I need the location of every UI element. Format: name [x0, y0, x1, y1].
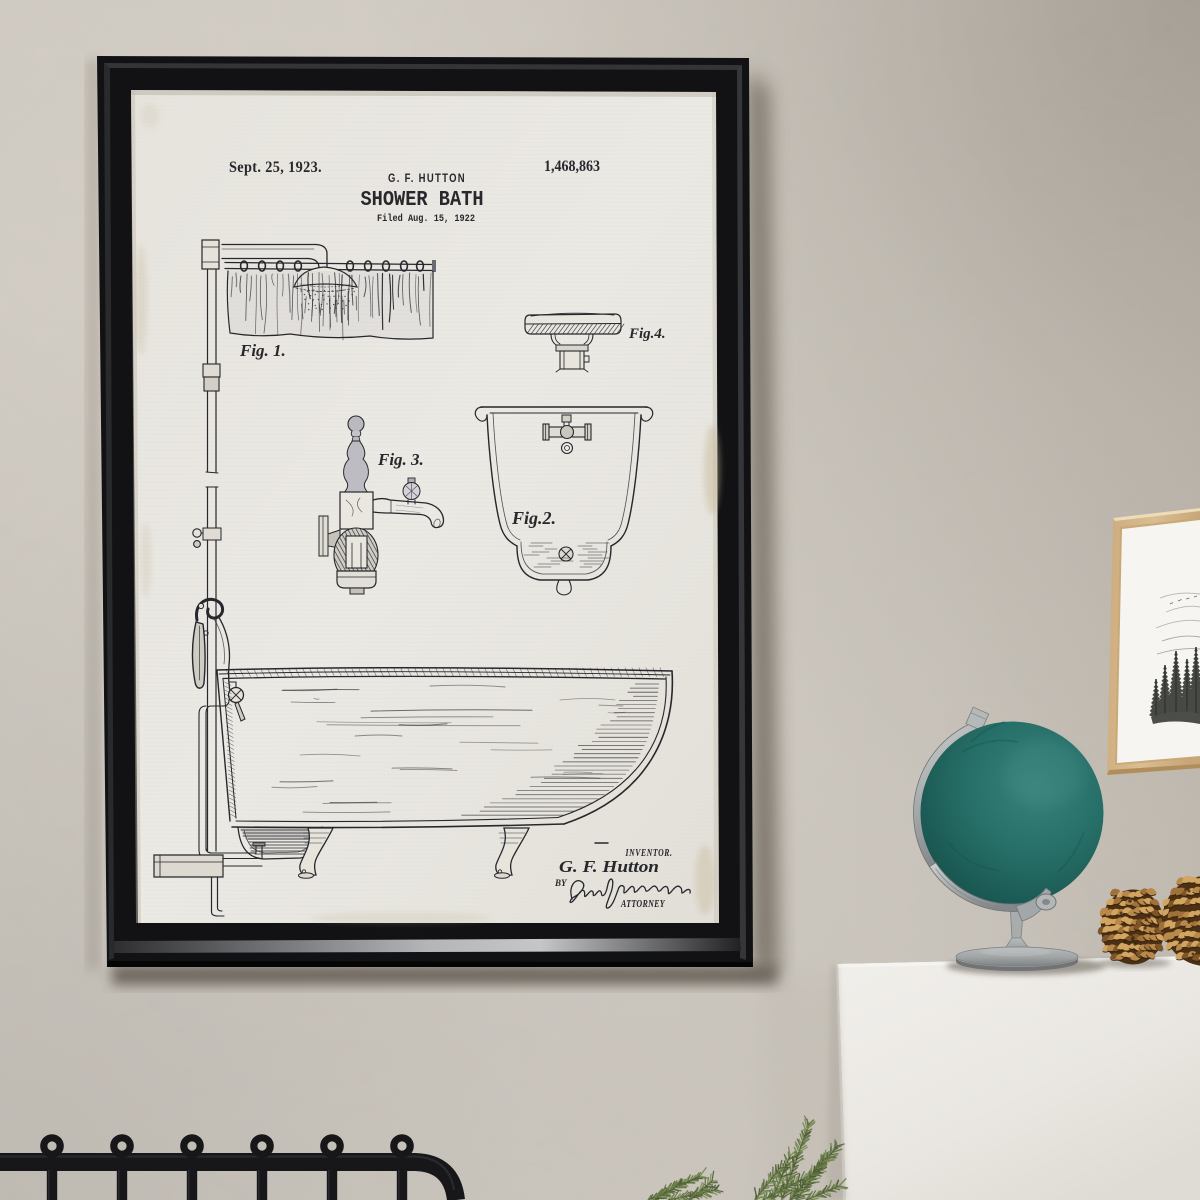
- svg-text:Filed Aug. 15, 1922: Filed Aug. 15, 1922: [377, 213, 475, 225]
- svg-text:Fig. 3.: Fig. 3.: [377, 450, 424, 469]
- svg-text:Fig.2.: Fig.2.: [511, 508, 556, 528]
- svg-text:SHOWER BATH: SHOWER BATH: [361, 189, 484, 212]
- svg-text:ATTORNEY: ATTORNEY: [620, 899, 666, 910]
- svg-text:BY: BY: [554, 878, 568, 888]
- svg-text:1,468,863: 1,468,863: [544, 158, 600, 175]
- svg-text:Fig. 1.: Fig. 1.: [239, 341, 286, 360]
- svg-text:Fig.4.: Fig.4.: [628, 326, 666, 342]
- svg-text:G. F. Hutton: G. F. Hutton: [559, 857, 659, 876]
- svg-text:Sept. 25, 1923.: Sept. 25, 1923.: [229, 159, 322, 176]
- svg-text:G. F. HUTTON: G. F. HUTTON: [388, 173, 466, 185]
